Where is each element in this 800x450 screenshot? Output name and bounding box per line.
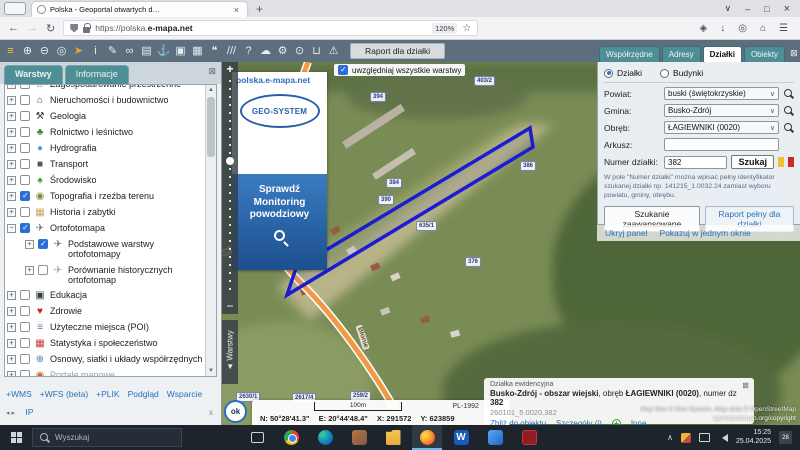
parcel-number-label: 376 [465,257,481,267]
flood-monitoring-banner[interactable]: Sprawdź Monitoring powodziowy [232,174,327,270]
layer-label: Hydrografia [50,143,97,153]
layer-checkbox[interactable] [20,338,30,348]
chevron-down-icon: ∨ [770,107,775,115]
help-icon[interactable]: ? [240,40,257,62]
expander-icon[interactable]: + [7,371,16,377]
chevron-down-icon: ∨ [770,124,775,132]
layer-icon: ⊕ [34,354,46,365]
layer-label: Porównanie historycznych ortofotomap [68,265,204,286]
cursor-icon[interactable]: ➤ [70,40,87,62]
downloads-icon[interactable]: ↓ [720,23,725,34]
expander-icon[interactable]: + [7,355,16,364]
expander-icon[interactable]: + [7,192,16,201]
field-search-icon[interactable] [783,122,794,133]
layer-checkbox[interactable] [20,175,30,185]
coord-y: Y: 623859 [420,414,454,423]
layer-item[interactable]: + ♣ Rolnictwo i leśnictwo [7,124,204,140]
footer-close-icon[interactable]: x [209,407,213,417]
upload-cloud-icon[interactable]: ☁ [257,40,274,62]
link-icon[interactable]: ∞ [121,40,138,62]
layer-label: Środowisko [50,175,97,185]
parcel-text: , obręb [598,389,625,398]
ok-button[interactable]: ok [224,400,247,423]
coordinates-readout: N: 50°28'41.3" E: 20°44'48.4" X: 291572 … [260,414,506,423]
form-row-arkusz: Arkusz: [604,138,794,151]
layer-icon: ♣ [34,127,46,138]
field-select[interactable]: Busko-Zdrój∨ [664,104,779,117]
field-value: ŁAGIEWNIKI (0020) [668,123,770,132]
forward-button[interactable]: → [27,22,38,34]
include-all-layers-checkbox[interactable]: uwzględniaj wszystkie warstwy [334,64,465,76]
settings-icon[interactable]: ⚙ [274,40,291,62]
expander-icon[interactable]: + [7,323,16,332]
radio-buildings[interactable]: Budynki [660,68,703,78]
photos-icon[interactable] [480,425,510,450]
banner-line: Sprawdź [232,184,327,197]
measure-lines-icon[interactable]: /// [223,40,240,62]
layer-checkbox[interactable] [20,322,30,332]
parcel-number-label: 390 [378,195,394,205]
windows-logo-icon [11,432,22,443]
banner-line: powodziowy [232,209,327,222]
expander-icon[interactable]: + [7,112,16,121]
clock-time: 15:25 [736,429,771,438]
layer-item[interactable]: + ● Hydrografia [7,140,204,156]
right-panel-close-icon[interactable]: ⊠ [787,48,800,62]
layer-checkbox[interactable] [20,95,30,105]
tracking-shield-icon[interactable] [70,24,78,33]
field-label: Obręb: [604,123,660,133]
layer-icon: ● [34,143,46,154]
layer-checkbox[interactable] [38,239,48,249]
map-attribution: Map tiles © Geo-System, Map data © OpenS… [640,406,796,423]
zoom-knob[interactable] [226,157,234,165]
layer-item[interactable]: + ■ Transport [7,156,204,172]
layer-checkbox[interactable] [38,265,48,275]
layer-icon: ✈ [52,239,64,250]
search-map-icon[interactable]: ⊙ [291,40,308,62]
copy-view-icon[interactable]: ▣ [172,40,189,62]
expander-icon[interactable]: + [25,240,34,249]
form-row: Powiat: buski (świętokrzyskie)∨ [604,87,794,100]
tab-list-icon[interactable]: ∨ [725,3,732,14]
acrobat-icon[interactable] [514,425,544,450]
pocket-icon[interactable]: ◈ [700,23,708,34]
new-tab-button[interactable]: + [253,2,266,16]
field-select[interactable]: buski (świętokrzyskie)∨ [664,87,779,100]
start-button[interactable] [0,425,32,450]
layer-item[interactable]: + ⚒ Geologia [7,108,204,124]
radio-parcels[interactable]: Działki [604,68,642,78]
browser-tab[interactable]: Polska - Geoportal otwartych d… × [32,2,247,17]
radio-icon[interactable] [660,69,669,78]
right-panel-footer: Ukryj panel Pokazuj w jednym oknie [597,225,800,241]
checkbox-label: uwzględniaj wszystkie warstwy [352,66,461,75]
search-icon [39,432,50,443]
zoom-in-icon[interactable]: ⊕ [19,40,36,62]
info-card-close-icon[interactable]: ⊠ [742,381,749,390]
task-view-icon[interactable] [242,425,272,450]
layer-icon: ⌂ [34,84,46,90]
legend-yellow-swatch [778,157,784,167]
expander-icon[interactable]: + [7,176,16,185]
banner-line: Monitoring [232,197,327,210]
layer-checkbox[interactable] [20,354,30,364]
layer-icon: ▦ [34,338,46,349]
layer-label: Użyteczne miejsca (POI) [50,322,149,332]
panel-footer-link[interactable]: Wsparcie [167,389,202,399]
single-window-link[interactable]: Pokazuj w jednym oknie [660,228,751,238]
chevron-down-icon: ∨ [770,90,775,98]
layers-toggle-label: ◄ Warstwy [226,321,235,381]
firefox-icon[interactable] [412,425,442,450]
layer-icon: ▦ [34,207,46,218]
parcel-number-label: 635/1 [416,221,437,231]
expander-icon[interactable]: + [7,84,16,89]
emapa-watermark: polska.e-mapa.net [232,72,327,88]
coord-n: N: 50°28'41.3" [260,414,310,423]
layer-icon: ✈ [34,223,46,234]
geo-system-logo: GEO-SYSTEM [240,94,320,128]
layer-tree: + ⌂ Zagospodarowanie przestrzenne + ⌂ Ni… [4,84,217,377]
expander-icon[interactable]: + [7,339,16,348]
panel-footer-link[interactable]: Podgląd [128,389,159,399]
form-row: Gmina: Busko-Zdrój∨ [604,104,794,117]
layer-item[interactable]: + ▦ Historia i zabytki [7,204,204,220]
parcel-search-panel: Działki Budynki Powiat: buski (świętokrz… [597,62,800,225]
layer-label: Transport [50,159,88,169]
layers-icon[interactable]: ≡ [2,40,19,62]
layer-item[interactable]: + ✈ Porównanie historycznych ortofotomap [25,262,204,288]
layer-icon: ♥ [34,306,46,317]
expander-icon[interactable]: + [7,128,16,137]
expander-icon[interactable]: − [7,224,16,233]
field-label: Numer działki: [604,157,660,167]
browser-tab-strip: Polska - Geoportal otwartych d… × + ∨ – … [0,0,800,17]
info-card-title: Działka ewidencyjna [490,381,748,388]
parcel-text: , numer dz [699,389,737,398]
panel-footer-link[interactable]: +WFS (beta) [40,389,88,399]
search-placeholder: Wyszukaj [55,433,89,442]
anchor-icon[interactable]: ⚓ [155,40,172,62]
tab-title: Polska - Geoportal otwartych d… [50,5,227,14]
print-icon[interactable]: ▤ [138,40,155,62]
layer-checkbox[interactable] [20,290,30,300]
url-text[interactable]: https://polska.e-mapa.net [95,23,427,33]
parcel-number-label: 403/2 [474,76,495,86]
clock-date: 25.04.2025 [736,438,771,447]
layer-checkbox[interactable] [20,223,30,233]
input-panel-icon[interactable] [699,433,710,442]
edge-icon[interactable] [310,425,340,450]
attribution-line1: Map tiles © Geo-System, Map data © OpenS… [640,406,796,414]
parcel-number-label: 386 [520,161,536,171]
layer-checkbox[interactable] [20,306,30,316]
ip-link[interactable]: IP [25,407,33,417]
word-icon[interactable]: W [446,425,476,450]
left-panel-tabs: WarstwyInformacje ⊠ [0,62,221,84]
parcel-obreb: ŁAGIEWNIKI (0020) [626,389,699,398]
left-panel-close-icon[interactable]: ⊠ [208,66,216,77]
right-panel-tab[interactable]: Obiekty [744,46,785,62]
scale-bar: 100m [314,402,402,411]
legend-red-swatch [788,157,794,167]
layer-icon: ✈ [52,265,64,276]
parcel-number-label: 394 [370,92,386,102]
firefox-view-icon[interactable] [4,2,26,15]
checkbox-icon[interactable] [338,65,348,75]
security-tray-icon[interactable] [681,433,691,443]
layer-label: Podstawowe warstwy ortofotomapy [68,239,204,260]
expander-icon[interactable]: + [25,266,34,275]
crs-label: PL-1992 [452,403,478,410]
url-prefix: https://polska. [95,23,147,33]
account-icon[interactable]: ◎ [738,23,747,34]
field-value: Busko-Zdrój [668,106,770,115]
layer-item[interactable]: + ≡ Użyteczne miejsca (POI) [7,319,204,335]
layer-item[interactable]: + ⌂ Nieruchomości i budownictwo [7,92,204,108]
layer-checkbox[interactable] [20,370,30,377]
hand-app-icon[interactable] [344,425,374,450]
bookmark-star-icon[interactable]: ☆ [462,23,471,34]
scroll-thumb[interactable] [207,97,215,157]
notifications-badge[interactable]: 28 [779,431,792,444]
expander-icon[interactable]: + [7,291,16,300]
layer-label: Portale mapowe [50,370,115,377]
layer-label: Topografia i rzeźba terenu [50,191,154,201]
layer-item[interactable]: + ⊕ Osnowy, siatki i układy współrzędnyc… [7,351,204,367]
layer-item[interactable]: + ♥ Zdrowie [7,303,204,319]
expander-icon[interactable]: + [7,307,16,316]
panel-footer-link[interactable]: +WMS [6,389,32,399]
layer-label: Nieruchomości i budownictwo [50,95,169,105]
layer-icon: ◉ [34,370,46,377]
map-status-bar: 100m PL-1992∨ N: 50°28'41.3" E: 20°44'48… [252,400,510,425]
minimize-button[interactable]: – [745,4,750,14]
speaker-icon[interactable] [718,434,728,442]
scroll-down-icon[interactable]: ▼ [208,368,214,374]
radio-icon[interactable] [604,69,613,78]
lock-icon[interactable] [83,27,90,33]
tab-favicon [37,5,46,14]
form-row-number: Numer działki: 382 Szukaj [604,155,794,169]
back-button[interactable]: ← [8,22,19,34]
layer-item[interactable]: + ▦ Statystyka i społeczeństwo [7,335,204,351]
report-parcel-button[interactable]: Raport dla działki [350,43,445,59]
left-panel-footer: ◂ ▸ IP x [6,407,215,417]
left-panel-tab[interactable]: Informacje [65,65,129,84]
layer-label: Osnowy, siatki i układy współrzędnych [50,354,202,364]
search-hint: W pole "Numer działki" można wpisać pełn… [604,173,794,201]
layer-item[interactable]: + ⌂ Zagospodarowanie przestrzenne [7,84,204,92]
zoom-in-control[interactable]: + [222,62,238,76]
field-label: Powiat: [604,89,660,99]
file-explorer-icon[interactable] [378,425,408,450]
layer-checkbox[interactable] [20,159,30,169]
expander-icon[interactable]: + [7,160,16,169]
zoom-out-icon[interactable]: ⊖ [36,40,53,62]
layer-icon: ⌂ [34,95,46,106]
right-panel-tab[interactable]: Adresy [662,46,701,62]
browser-url-row: ← → ↻ https://polska.e-mapa.net 120% ☆ ◈… [0,17,800,40]
parcel-description: Busko-Zdrój - obszar wiejski, obręb ŁAGI… [490,389,748,407]
layer-checkbox[interactable] [20,143,30,153]
parcel-number-label: 384 [386,178,402,188]
layer-icon: ■ [34,159,46,170]
radio-label: Budynki [673,68,703,78]
parcel-area-name: Busko-Zdrój - obszar wiejski [490,389,598,398]
layer-label: Statystyka i społeczeństwo [50,338,158,348]
field-label: Gmina: [604,106,660,116]
search-button[interactable]: Szukaj [731,155,774,169]
warning-icon[interactable]: ⚠ [325,40,342,62]
split-view-icon[interactable]: ▦ [189,40,206,62]
layer-item[interactable]: − ✈ Ortofotomapa [7,220,204,236]
parcel-number-input[interactable]: 382 [664,156,727,169]
parcel-number: 382 [490,398,503,407]
right-panel-tabs: WspółrzędneAdresyDziałkiObiekty ⊠ [597,40,800,62]
layer-checkbox[interactable] [20,207,30,217]
tray-chevron-icon[interactable]: ∧ [667,433,673,442]
layer-item[interactable]: + ▣ Edukacja [7,287,204,303]
right-panel-tab[interactable]: Współrzędne [599,46,660,62]
emapa-promo-card: polska.e-mapa.net GEO-SYSTEM Sprawdź Mon… [232,72,327,270]
layer-checkbox[interactable] [20,84,30,89]
system-tray: ∧ 15:25 25.04.2025 28 [667,429,800,447]
attribution-link[interactable]: openstreetmap.org/copyright [640,415,796,423]
menu-icon[interactable]: ☰ [779,23,788,34]
reload-button[interactable]: ↻ [46,22,55,35]
zoom-out-control[interactable]: − [222,300,238,312]
windows-taskbar: Wyszukaj W ∧ 15:25 25.04.2025 28 [0,425,800,450]
form-row: Obręb: ŁAGIEWNIKI (0020)∨ [604,121,794,134]
taskbar-search[interactable]: Wyszukaj [32,428,182,447]
field-select[interactable]: ŁAGIEWNIKI (0020)∨ [664,121,779,134]
zoom-slider[interactable]: + − [222,62,238,314]
scroll-up-icon[interactable]: ▲ [208,87,214,93]
chrome-icon[interactable] [276,425,306,450]
layer-label: Geologia [50,111,86,121]
cart-icon[interactable]: ⊔ [308,40,325,62]
comment-icon[interactable]: ❝ [206,40,223,62]
layer-item[interactable]: + ♠ Środowisko [7,172,204,188]
layers-panel-toggle[interactable]: ◄ Warstwy [222,320,238,384]
coord-e: E: 20°44'48.4" [319,414,368,423]
layer-label: Ortofotomapa [50,223,105,233]
radio-label: Działki [617,68,642,78]
layer-icon: ◉ [34,191,46,202]
layer-item[interactable]: + ✈ Podstawowe warstwy ortofotomapy [25,236,204,262]
field-value: buski (świętokrzyskie) [668,89,770,98]
right-panel-tab[interactable]: Działki [703,46,742,62]
arkusz-input[interactable] [664,138,779,151]
left-panel-tab[interactable]: Warstwy [4,65,63,84]
close-button[interactable]: × [784,3,790,15]
info-icon[interactable]: i [87,40,104,62]
layers-panel: WarstwyInformacje ⊠ + ⌂ Zagospodarowanie… [0,62,222,425]
home-icon[interactable]: ⌂ [760,23,766,34]
layer-label: Zagospodarowanie przestrzenne [50,84,181,89]
layer-icon: ≡ [34,322,46,333]
layer-scrollbar[interactable]: ▲ ▼ [205,85,216,376]
expander-icon[interactable]: + [7,208,16,217]
tab-close-icon[interactable]: × [231,5,242,15]
hide-panel-link[interactable]: Ukryj panel [605,228,648,238]
magnifier-icon [274,230,285,241]
pager-arrows-icon[interactable]: ◂ ▸ [6,410,15,417]
field-search-icon[interactable] [783,105,794,116]
layer-checkbox[interactable] [20,191,30,201]
url-bar[interactable]: https://polska.e-mapa.net 120% ☆ [63,20,478,36]
coord-x: X: 291572 [377,414,412,423]
maximize-button[interactable]: □ [764,4,769,14]
layer-checkbox[interactable] [20,127,30,137]
layer-label: Rolnictwo i leśnictwo [50,127,133,137]
layer-label: Edukacja [50,290,87,300]
field-label: Arkusz: [604,140,660,150]
select-area-icon[interactable]: ◎ [53,40,70,62]
zoom-track[interactable] [229,80,231,296]
url-domain: e-mapa.net [148,23,193,33]
expander-icon[interactable]: + [7,144,16,153]
layer-checkbox[interactable] [20,111,30,121]
layer-item[interactable]: + ◉ Topografia i rzeźba terenu [7,188,204,204]
measure-icon[interactable]: ✎ [104,40,121,62]
layer-icon: ♠ [34,175,46,186]
layer-item[interactable]: + ◉ Portale mapowe [7,367,204,377]
field-search-icon[interactable] [783,88,794,99]
panel-footer-link[interactable]: +PLIK [96,389,119,399]
layer-icon: ▣ [34,290,46,301]
layer-label: Historia i zabytki [50,207,116,217]
expander-icon[interactable]: + [7,96,16,105]
page-zoom-indicator[interactable]: 120% [432,23,457,34]
taskbar-clock[interactable]: 15:25 25.04.2025 [736,429,771,447]
layer-icon: ⚒ [34,111,46,122]
layer-label: Zdrowie [50,306,82,316]
